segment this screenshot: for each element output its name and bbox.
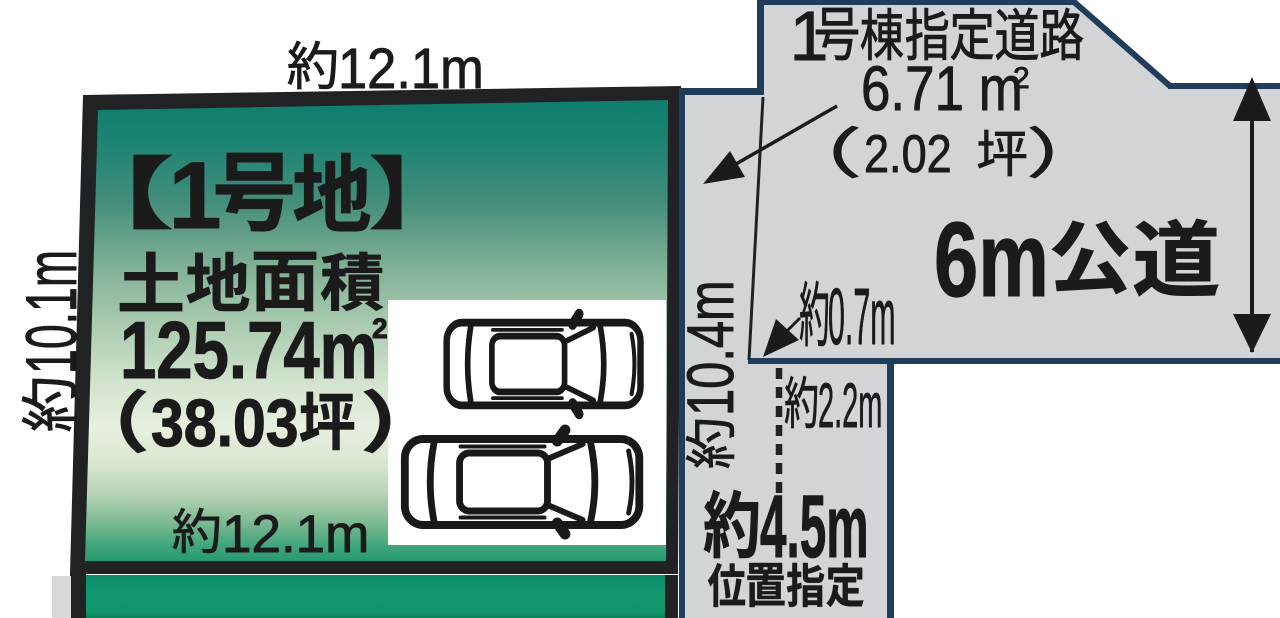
svg-text:6.71 m: 6.71 m [861,54,1023,124]
svg-text:38.03: 38.03 [151,386,299,461]
svg-text:125.74m: 125.74m [120,306,378,396]
svg-text:2.2m: 2.2m [818,371,882,441]
svg-text:4.5m: 4.5m [760,476,869,576]
svg-text:2: 2 [1013,62,1030,95]
svg-text:12.1m: 12.1m [222,505,369,564]
svg-text:12.1m: 12.1m [338,37,484,101]
svg-text:0.7m: 0.7m [828,272,896,361]
svg-text:10.4m: 10.4m [673,280,747,416]
svg-text:10.1m: 10.1m [12,250,92,374]
svg-text:2.02: 2.02 [864,125,952,184]
svg-text:6m: 6m [934,201,1049,319]
svg-text:2: 2 [372,313,388,344]
svg-text:1: 1 [169,143,222,249]
